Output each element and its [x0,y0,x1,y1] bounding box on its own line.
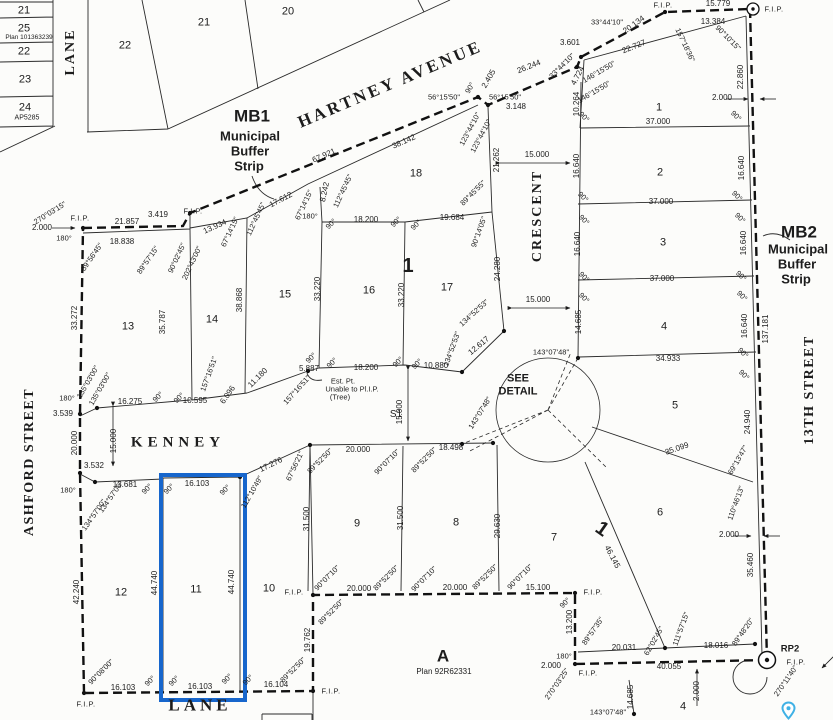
dimension-label: 16.640 [740,231,748,255]
dimension-label: 29.630 [494,514,502,538]
street-name-label: KENNEY [131,436,225,451]
dimension-label: 21.262 [493,148,501,172]
lot-number-label: 22 [18,47,30,58]
block-number-label: 1 [402,256,413,276]
dimension-label: 24.940 [744,410,752,434]
annotation-label: MB1 [234,108,270,125]
dimension-label: 3.419 [148,211,168,219]
dimension-label: 24.280 [494,257,502,281]
dimension-label: 37.000 [650,275,674,283]
lot-number-label: 12 [115,588,127,599]
dimension-label: 16.275 [118,398,142,406]
angle-label: 143°07'48" [590,708,626,716]
monument-label: F.I.P. [321,687,340,695]
lot-number-label: 3 [660,238,666,249]
dimension-label: 13.200 [566,610,574,634]
lot-number-label: 4 [661,322,667,333]
angle-label: 56°15'50" [428,93,460,101]
annotation-label: Strip [234,160,264,173]
dimension-label: 15.100 [526,584,550,592]
dimension-label: 37.000 [649,198,673,206]
dimension-label: 33.220 [398,283,406,307]
dimension-label: 16.640 [573,154,581,178]
monument-label: F.I.P. [284,588,303,596]
dimension-label: 2.000 [693,681,701,701]
lot-boundaries [0,0,762,720]
angle-label: 33°44'10" [591,18,623,26]
dimension-label: 20.000 [71,431,79,455]
rp2-monument-circle [759,652,776,669]
dimension-label: 2.000 [712,94,732,102]
dimension-label: 15.779 [706,0,730,8]
street-name-label: LANE [64,29,78,76]
lot-number-label: 21 [18,6,30,17]
dimension-label: Plan 92R62331 [416,668,471,676]
dimension-label: (Tree) [330,393,350,401]
lot-number-label: 23 [19,75,31,86]
street-name-label: CRESCENT [531,170,545,262]
dimension-label: 31.500 [397,506,405,530]
dimension-label: 20.031 [612,644,636,652]
monument-label: F.I.P. [764,5,783,13]
dimension-label: Plan 101363239 [5,35,52,42]
annotation-label: Municipal [220,130,280,143]
dimension-label: 15.000 [110,429,118,453]
dimension-label: 38.868 [236,288,244,312]
dimension-label: 31.500 [303,507,311,531]
angle-label: 180° [60,486,76,494]
angle-label: 56°15'50" [489,93,521,101]
dimension-label: 15.000 [526,296,550,304]
annotation-label: Buffer [778,258,816,271]
angle-label: 180° [56,234,72,242]
dimension-label: 40.055 [657,663,681,671]
lot-number-label: 13 [122,322,134,333]
fip-monument-circle [747,3,759,15]
lot-number-label: 14 [206,315,218,326]
lot-number-label: 21 [198,18,210,29]
dimension-label: 20.000 [347,585,371,593]
lot-number-label: 16 [363,286,375,297]
lot-number-label: 4 [680,702,686,713]
dimension-label: 15.000 [396,400,404,424]
dimension-label: 18.200 [354,216,378,224]
annotation-label: Municipal [768,243,828,256]
dimension-label: 22.860 [737,65,745,89]
annotation-label: DETAIL [499,387,538,398]
map-pin-icon[interactable] [779,701,798,720]
dimension-label: 3.532 [84,462,104,470]
dimension-label: 3.601 [560,39,580,47]
lot-number-label: 15 [279,290,291,301]
lot-number-label: 1 [656,103,662,114]
dimension-label: 18.200 [354,364,378,372]
survey-plat-map: HARTNEY AVENUECRESCENTASHFORD STREET13TH… [0,0,833,720]
monument-label: F.I.P. [653,1,672,9]
dimension-label: 14.685 [575,310,583,334]
dimension-label: 20.000 [346,446,370,454]
monument-label: F.I.P. [578,669,597,677]
dimension-label: 35.460 [747,553,755,577]
dimension-label: 33.220 [314,277,322,301]
dimension-label: 19.684 [440,214,464,222]
monument-label: F.I.P. [583,588,602,596]
annotation-label: Buffer [231,145,269,158]
annotation-label: RP2 [781,644,799,654]
dimension-label: 16.640 [741,314,749,338]
dimension-label: 19.762 [304,628,312,652]
angle-label: 180° [556,652,572,660]
dimension-label: 21.857 [115,218,139,226]
street-name-label: LANE [168,697,231,714]
angle-label: 180° [302,212,318,220]
dimension-label: 16.103 [188,683,212,691]
lot-number-label: 7 [551,533,557,544]
dimension-label: 18.838 [110,238,134,246]
monument-label: F.I.P. [183,207,202,215]
lot-number-label: 20 [282,7,294,18]
dimension-label: AP5285 [15,115,40,122]
dimension-label: 14.685 [627,685,635,709]
monument-label: F.I.P. [70,214,89,222]
angle-label: 143°07'48" [533,348,569,356]
dimension-label: 42.240 [73,580,81,604]
dimension-label: 2.000 [541,662,561,670]
dimension-label: 2.000 [719,531,739,539]
lot-number-label: 2 [657,168,663,179]
lot-number-label: 8 [453,518,459,529]
lot-number-label: 18 [410,169,422,180]
dimension-label: 18.498 [439,444,463,452]
dimension-label: 15.000 [525,151,549,159]
dimension-label: 16.640 [574,232,582,256]
lot-number-label: 5 [672,401,678,412]
dimension-label: 20.000 [443,584,467,592]
dimension-label: 44.740 [151,571,159,595]
dimension-label: 5.887 [299,365,319,373]
dimension-label: 10.595 [183,397,207,405]
dimension-label: 16.103 [111,684,135,692]
dimension-label: 3.539 [53,410,73,418]
angle-label: 180° [59,394,75,402]
monument-label: F.I.P. [786,658,805,666]
monument-label: F.I.P. [76,700,95,708]
lot-number-label: 6 [657,508,663,519]
lot-number-label: 11 [190,585,201,596]
lot-number-label: 10 [263,584,275,595]
dimension-label: 18.016 [704,642,728,650]
dimension-label: 3.148 [506,103,526,111]
annotation-label: A [437,648,449,665]
street-name-label: ASHFORD STREET [23,388,37,536]
dimension-label: 2.000 [32,224,52,232]
dimension-label: 137.181 [762,315,770,344]
lot-number-label: 25 [18,24,30,35]
lot-number-label: 22 [119,41,131,52]
dimension-label: 16.103 [185,480,209,488]
dimension-label: 33.272 [71,306,79,330]
lot-number-label: 24 [19,103,31,114]
annotation-label: SEE [507,374,529,385]
lot-number-label: 17 [441,283,453,294]
dimension-label: 35.787 [159,310,167,334]
dimension-label: 16.640 [738,156,746,180]
annotation-label: Strip [781,273,811,286]
annotation-label: MB2 [781,224,817,241]
lot-number-label: 9 [354,519,360,530]
dimension-label: 34.933 [656,355,680,363]
street-name-label: 13TH STREET [803,335,817,444]
dimension-label: 37.000 [646,118,670,126]
dimension-label: 44.740 [228,570,236,594]
